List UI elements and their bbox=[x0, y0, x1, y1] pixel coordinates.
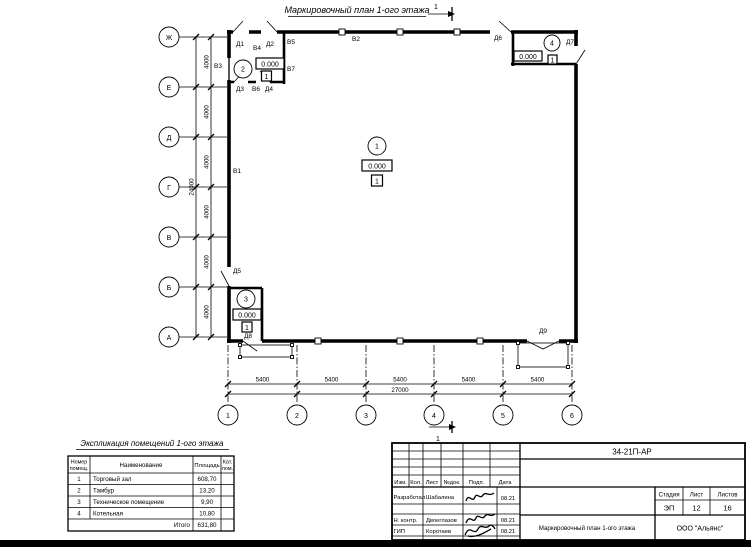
axis-label: Д bbox=[167, 135, 172, 142]
svg-text:Торговый зал: Торговый зал bbox=[93, 476, 132, 483]
col-header: Номер bbox=[71, 460, 88, 466]
svg-text:Разработал: Разработал bbox=[394, 495, 426, 501]
window-label-v4: В4 bbox=[253, 45, 261, 52]
section-label: 1 bbox=[434, 4, 438, 11]
sheet-label: Лист bbox=[690, 492, 704, 499]
floor-type: 1 bbox=[551, 57, 555, 64]
tb-col-header: №док. bbox=[444, 480, 461, 486]
porch-bottom-left bbox=[239, 344, 294, 359]
axis-label: 5 bbox=[501, 413, 505, 420]
svg-text:13,20: 13,20 bbox=[199, 488, 215, 495]
tb-drawing-title: Маркировочный план 1-ого этажа bbox=[539, 525, 636, 532]
svg-text:Тамбур: Тамбур bbox=[93, 488, 115, 495]
floor-type: 1 bbox=[245, 325, 249, 332]
wall-columns bbox=[315, 29, 483, 344]
stage-value: ЭП bbox=[664, 504, 675, 513]
svg-text:Коротаев: Коротаев bbox=[426, 529, 451, 535]
tb-col-header: Дата bbox=[499, 480, 513, 486]
dim-text: 4000 bbox=[204, 105, 211, 119]
axis-label: 4 bbox=[432, 413, 436, 420]
col-header: Кат. bbox=[223, 460, 232, 466]
floor-type: 1 bbox=[375, 178, 379, 185]
axis-label: 2 bbox=[295, 413, 299, 420]
dim-text: 4000 bbox=[204, 155, 211, 169]
door-label-d6: Д6 bbox=[494, 35, 502, 42]
dim-text: 4000 bbox=[204, 55, 211, 69]
dim-text: 4000 bbox=[204, 255, 211, 269]
explication-total-row: Итого 631,80 bbox=[174, 522, 217, 529]
dim-total-text: 24000 bbox=[189, 178, 196, 196]
svg-text:Техническое помещение: Техническое помещение bbox=[93, 499, 165, 506]
dim-text: 4000 bbox=[204, 205, 211, 219]
door-label-d9: Д9 bbox=[539, 328, 547, 335]
tb-col-header: Изм. bbox=[394, 480, 407, 486]
exterior-walls bbox=[227, 30, 578, 343]
dims-bottom: 5400 5400 5400 5400 5400 27000 bbox=[225, 345, 575, 404]
room-marker-4: 4 0.000 1 bbox=[514, 35, 560, 64]
door-label-d5: Д5 bbox=[233, 268, 241, 275]
partitions bbox=[229, 32, 576, 341]
tb-col-header: Подп. bbox=[469, 480, 485, 486]
axis-label: 1 bbox=[226, 413, 230, 420]
drawing-sheet: Маркировочный план 1-ого этажа 1 Ж Е Д Г… bbox=[0, 0, 751, 547]
col-header: пом. bbox=[222, 466, 233, 472]
window-label-v1: В1 bbox=[233, 168, 241, 175]
axis-label: В bbox=[167, 235, 172, 242]
svg-text:Двоеглазов: Двоеглазов bbox=[426, 518, 457, 524]
sheets-label: Листов bbox=[717, 492, 738, 499]
elevation-mark: 0.000 bbox=[238, 312, 256, 319]
sheet-value: 12 bbox=[692, 504, 700, 513]
dim-text: 5400 bbox=[531, 377, 545, 384]
page-title: Маркировочный план 1-ого этажа bbox=[284, 5, 429, 15]
company-name: ООО "Альянс" bbox=[677, 526, 724, 533]
explication-row: 4 Котельная 10,80 bbox=[77, 511, 215, 518]
svg-text:Итого: Итого bbox=[174, 522, 191, 529]
room-marker-1: 1 0.000 1 bbox=[362, 137, 392, 186]
axis-label: 6 bbox=[570, 413, 574, 420]
col-header: помещ. bbox=[70, 466, 89, 472]
svg-text:3: 3 bbox=[77, 499, 81, 506]
room-number: 2 bbox=[241, 67, 245, 74]
room-marker-2: 2 0.000 1 bbox=[234, 58, 284, 81]
svg-text:2: 2 bbox=[77, 488, 81, 495]
svg-text:4: 4 bbox=[77, 511, 81, 518]
room-number: 3 bbox=[244, 297, 248, 304]
svg-text:10,80: 10,80 bbox=[199, 511, 215, 518]
door-label-d8: Д8 bbox=[244, 333, 252, 340]
svg-text:631,80: 631,80 bbox=[198, 522, 217, 529]
window-label-v3: В3 bbox=[214, 63, 222, 70]
window-label-v7: В7 bbox=[287, 66, 295, 73]
tb-col-header: Лист bbox=[426, 480, 439, 486]
svg-text:Н. контр.: Н. контр. bbox=[394, 518, 418, 524]
section-label: 1 bbox=[436, 436, 440, 443]
signature bbox=[465, 525, 495, 536]
svg-text:608,70: 608,70 bbox=[198, 476, 217, 483]
sheet-frame-bottom bbox=[0, 540, 751, 547]
explication-table: Экспликация помещений 1-ого этажа Номер … bbox=[68, 439, 234, 531]
dim-text: 5400 bbox=[325, 377, 339, 384]
room-marker-3: 3 0.000 1 bbox=[233, 290, 261, 332]
explication-title: Экспликация помещений 1-ого этажа bbox=[81, 439, 224, 448]
sheets-value: 16 bbox=[723, 504, 731, 513]
svg-text:1: 1 bbox=[77, 476, 81, 483]
tb-col-header: Кол. bbox=[410, 480, 422, 486]
floor-type: 1 bbox=[265, 74, 269, 81]
dim-text: 5400 bbox=[393, 377, 407, 384]
explication-row: 1 Торговый зал 608,70 bbox=[77, 476, 217, 483]
axis-label: Б bbox=[167, 285, 172, 292]
axis-label: А bbox=[167, 335, 172, 342]
room-number: 1 bbox=[375, 144, 379, 151]
axis-label: Е bbox=[167, 85, 172, 92]
col-header: Площадь bbox=[194, 463, 219, 469]
window-label-v5: В5 bbox=[287, 39, 295, 46]
title-block: Изм. Кол. Лист №док. Подп. Дата Разработ… bbox=[392, 443, 745, 540]
door-label-d2: Д2 bbox=[266, 41, 274, 48]
dim-text: 5400 bbox=[462, 377, 476, 384]
door-label-d3: Д3 bbox=[236, 86, 244, 93]
col-header: Наименование bbox=[120, 462, 163, 469]
door-leaves bbox=[221, 21, 585, 351]
axis-label: Г bbox=[167, 185, 171, 192]
door-label-d7: Д7 bbox=[566, 39, 574, 46]
doc-number: 34-21П-АР bbox=[612, 448, 652, 457]
room-number: 4 bbox=[550, 41, 554, 48]
axes-bottom: 1 2 3 4 5 6 bbox=[218, 405, 582, 425]
elevation-mark: 0.000 bbox=[519, 54, 537, 61]
svg-text:Шабалина: Шабалина bbox=[426, 495, 455, 501]
signature bbox=[466, 514, 495, 523]
dim-text: 4000 bbox=[204, 305, 211, 319]
explication-row: 2 Тамбур 13,20 bbox=[77, 488, 215, 495]
svg-text:08.21: 08.21 bbox=[501, 518, 516, 524]
window-label-v6: В6 bbox=[252, 86, 260, 93]
dim-text: 5400 bbox=[256, 377, 270, 384]
door-label-d1: Д1 bbox=[236, 41, 244, 48]
dim-total-text: 27000 bbox=[391, 387, 409, 394]
axis-label: Ж bbox=[166, 35, 173, 42]
svg-text:Котельная: Котельная bbox=[93, 511, 123, 518]
elevation-mark: 0.000 bbox=[368, 163, 386, 170]
porch-bottom-right bbox=[517, 342, 570, 369]
svg-text:9,90: 9,90 bbox=[201, 499, 214, 506]
door-label-d4: Д4 bbox=[265, 86, 273, 93]
drawing-svg: Маркировочный план 1-ого этажа 1 Ж Е Д Г… bbox=[0, 0, 751, 547]
svg-text:08.21: 08.21 bbox=[501, 529, 516, 535]
svg-text:ГИП: ГИП bbox=[394, 529, 405, 535]
axis-label: 3 bbox=[364, 413, 368, 420]
signature bbox=[466, 493, 494, 501]
svg-text:08.21: 08.21 bbox=[501, 496, 516, 502]
section-mark-top: 1 bbox=[428, 4, 455, 21]
stage-label: Стадия bbox=[658, 492, 679, 499]
elevation-mark: 0.000 bbox=[261, 61, 279, 68]
window-label-v2: В2 bbox=[352, 36, 360, 43]
